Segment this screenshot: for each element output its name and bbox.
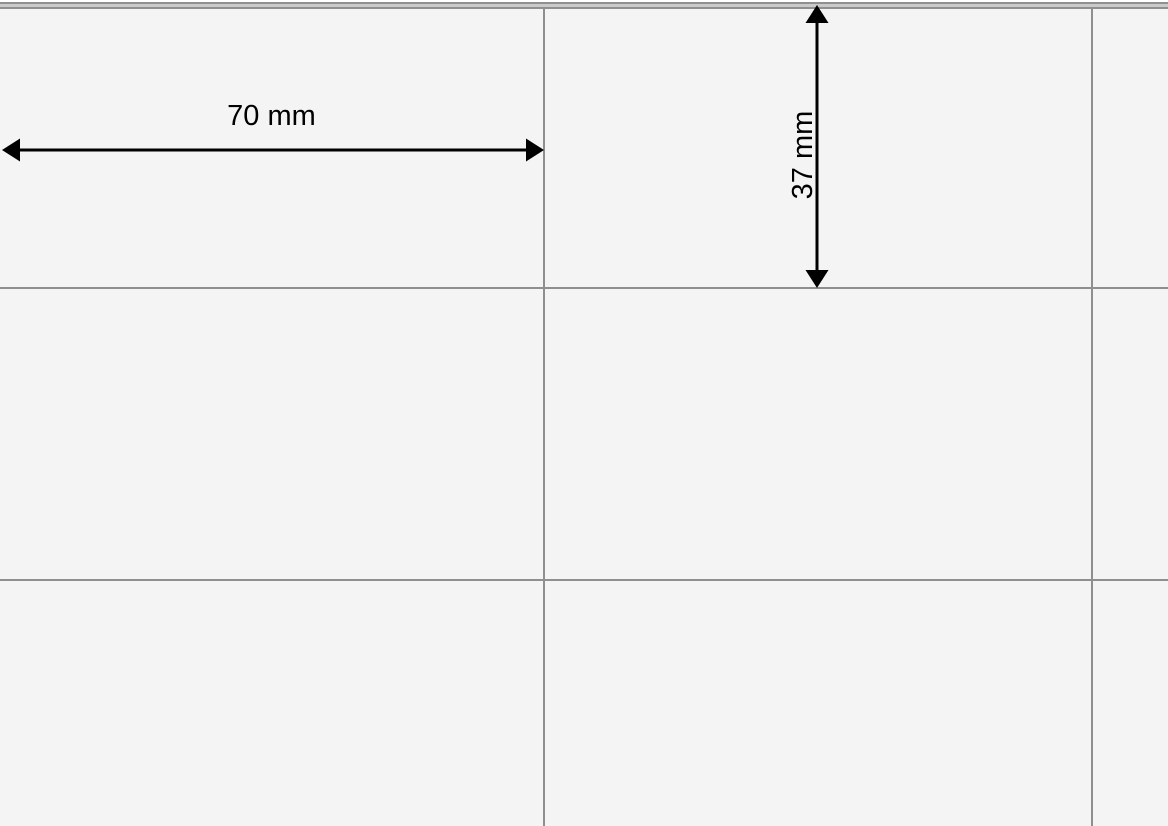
height-dimension-label: 37 mm — [788, 85, 818, 225]
label-cell-r3c1 — [0, 581, 543, 826]
label-cell-r3c2 — [545, 581, 1091, 826]
label-sheet-preview: 70 mm 37 mm — [0, 0, 1168, 826]
label-cell-r2c3 — [1093, 289, 1168, 579]
label-cell-r1c3 — [1093, 9, 1168, 287]
label-cell-r3c3 — [1093, 581, 1168, 826]
width-dimension-label: 70 mm — [0, 101, 543, 131]
label-cell-r2c1 — [0, 289, 543, 579]
label-cell-r2c2 — [545, 289, 1091, 579]
width-dimension-arrow-icon — [0, 136, 546, 164]
